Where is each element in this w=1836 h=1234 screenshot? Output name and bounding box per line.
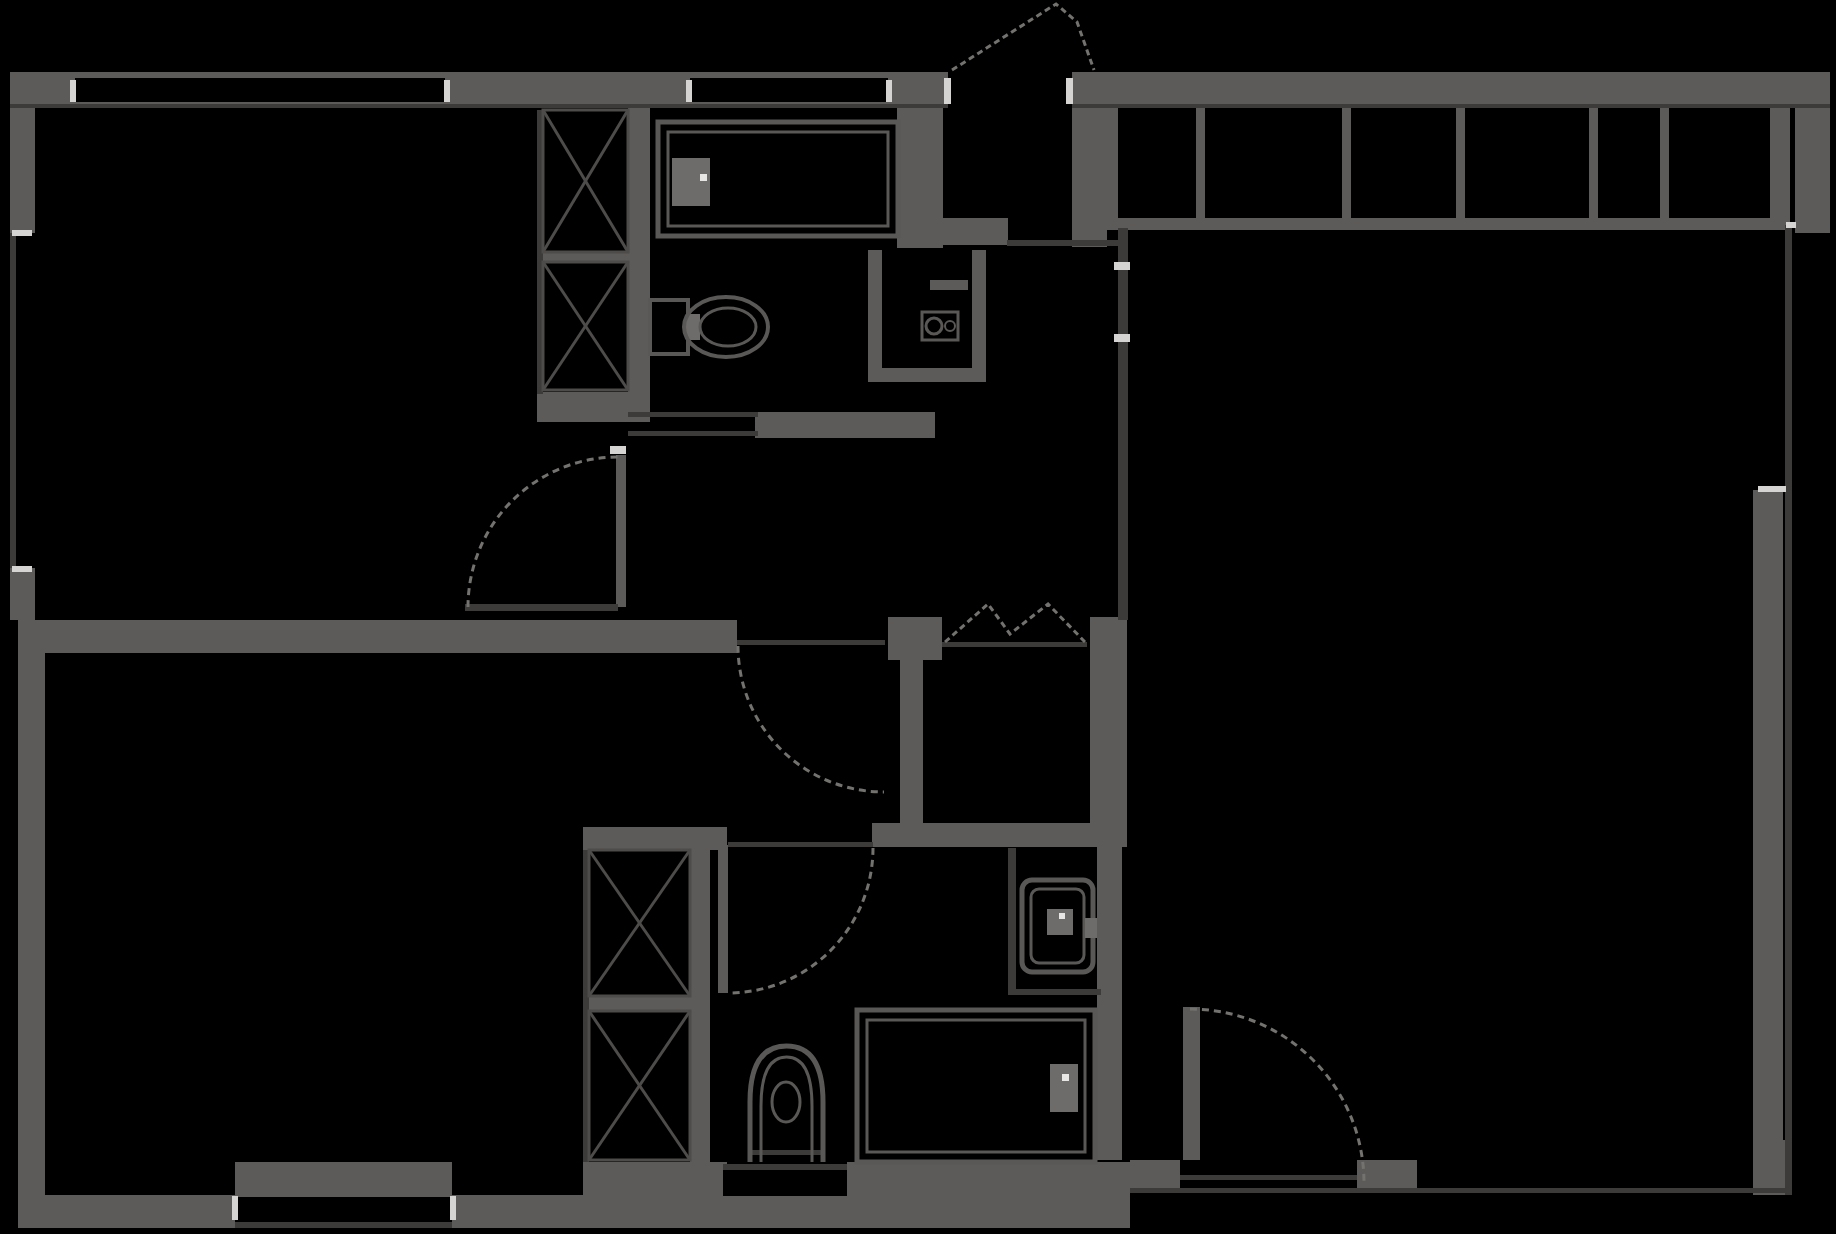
closet-lower-top-wall: [583, 827, 727, 850]
closet-top-left-bottom-wall: [537, 392, 637, 422]
toilet-lower-dot: [1059, 913, 1065, 919]
bath-window-tick-left: [686, 80, 692, 102]
patio-door-swing-arc: [1190, 1009, 1364, 1183]
floor-plan-canvas: [0, 0, 1836, 1234]
bath-top-left-wall: [628, 108, 650, 422]
wic-top-left-block: [888, 617, 942, 660]
hall-livingroom-divider-line: [1118, 228, 1128, 620]
bottom-wall-2: [452, 1195, 583, 1228]
wc-top-stub: [930, 280, 968, 290]
closet-row-divider-1: [1196, 108, 1205, 220]
left-wall-upper: [10, 72, 35, 233]
bottom-wall-window-band: [235, 1162, 452, 1197]
bottom-window-left-slot: [235, 1197, 452, 1222]
bath-bottom-window-slot: [723, 1170, 847, 1196]
wc-right-wall: [972, 250, 986, 382]
hall-door-swing-arc: [738, 646, 884, 792]
bath-window-tick-right: [886, 80, 892, 102]
closet-row-divider-2: [1342, 108, 1351, 220]
left-window-slot: [16, 233, 35, 568]
toilet-top-joint: [686, 314, 700, 340]
closet-row-end-block: [1770, 108, 1790, 220]
right-wall-upper: [1795, 72, 1830, 233]
bottom-window-tick-left: [232, 1196, 238, 1220]
top-wall-inner-line-right: [1072, 104, 1830, 108]
bath-lower-door-swing-arc: [728, 848, 873, 993]
closet-lower-right-wall: [690, 850, 710, 1162]
bedroom1-door-jamb-tick: [610, 446, 626, 454]
bottom-wall-under-bath-window: [723, 1196, 847, 1228]
closet-row-left-edge: [1107, 108, 1118, 220]
wic-right-wall: [1090, 617, 1127, 847]
left-window-tick-bottom: [12, 566, 32, 572]
bathtub-lower-faucet-dot: [1062, 1074, 1069, 1081]
bottom-corner-right: [1753, 1140, 1790, 1195]
left-window-tick-top: [12, 230, 32, 236]
left-wall-lower: [18, 620, 45, 1228]
bathtub-top-faucet-dot: [700, 174, 707, 181]
closet-row-divider-3: [1456, 108, 1465, 220]
bottom-wall-closet-band: [583, 1162, 727, 1228]
bath-bottom-window-top-line: [723, 1164, 847, 1170]
entry-jamb-tick-left: [944, 78, 951, 104]
top-window-tick-left: [70, 80, 76, 102]
mid-dividing-wall: [35, 620, 737, 653]
toilet-top-bowl-inner: [700, 308, 756, 346]
bottom-wall-3: [847, 1162, 1130, 1228]
toilet-nook-left-line: [1008, 848, 1016, 995]
bath-top-sliding-door-line-a: [628, 412, 758, 417]
toilet-nook-bottom-line: [1016, 989, 1101, 995]
bedroom1-door-swing-arc: [468, 457, 618, 607]
wc-bottom-wall: [868, 368, 986, 382]
closet-row-divider-4: [1589, 108, 1598, 220]
wic-bottom-wall: [872, 823, 1120, 847]
right-window-glass-line: [1785, 225, 1792, 1195]
center-divider-lower: [1097, 847, 1122, 1160]
entry-jamb-tick-right: [1066, 78, 1073, 104]
right-window-tick-bottom: [1758, 486, 1786, 492]
pedestal-sink-basin: [772, 1082, 800, 1122]
left-window-glass-line: [10, 233, 16, 568]
top-wall-inner-line-left: [10, 104, 948, 108]
bedroom1-door-leaf-line: [465, 604, 618, 611]
washer-knob: [945, 321, 955, 331]
bath-top-bottom-wall: [755, 412, 935, 438]
wic-bifold-door-lines: [945, 604, 1085, 642]
bottom-wall-left: [18, 1195, 235, 1228]
right-window-tick-top: [1786, 222, 1796, 228]
washer-drum: [926, 318, 942, 334]
toilet-lower-outlet: [1085, 918, 1097, 938]
vestibule-hall-line: [1007, 240, 1123, 246]
patio-door-track-line: [1180, 1175, 1357, 1180]
right-wall-lower: [1753, 490, 1783, 1195]
top-window-left-slot: [75, 78, 445, 102]
divider-tick-2: [1114, 334, 1130, 342]
bottom-window-left-outer-line: [235, 1222, 452, 1228]
bath-top-sliding-door-line-b: [628, 431, 758, 436]
toilet-lower-button: [1047, 909, 1073, 935]
patio-door-leaf: [1183, 1007, 1200, 1183]
left-wall-mid: [10, 568, 35, 620]
bath-lower-door-leaf: [718, 845, 728, 993]
pedestal-sink-inner: [761, 1057, 812, 1162]
entry-door-opening: [948, 72, 1072, 108]
closet-lower-divider: [589, 996, 690, 1011]
divider-tick-1: [1114, 262, 1130, 270]
entry-door-swing-lines: [952, 4, 1094, 70]
closet-row-bottom-wall: [1107, 218, 1790, 230]
bedroom1-door-jamb: [616, 455, 626, 607]
top-window-bath-slot: [690, 78, 888, 102]
bottom-window-tick-right: [450, 1196, 456, 1220]
closet-row-divider-5: [1660, 108, 1669, 220]
vestibule-bottom-wall: [930, 218, 1008, 245]
hall-door-head-line: [737, 640, 885, 645]
bathtub-lower-faucet: [1050, 1064, 1078, 1112]
bottom-right-glass-line: [1130, 1188, 1790, 1193]
wc-left-wall: [868, 250, 882, 382]
top-window-tick-right: [444, 80, 450, 102]
floor-plan: [0, 0, 1836, 1234]
vestibule-right-wall: [1072, 85, 1107, 247]
bath-lower-door-threshold: [728, 842, 873, 847]
bathtub-top-faucet: [672, 158, 710, 206]
wic-bifold-head-line: [942, 642, 1087, 647]
